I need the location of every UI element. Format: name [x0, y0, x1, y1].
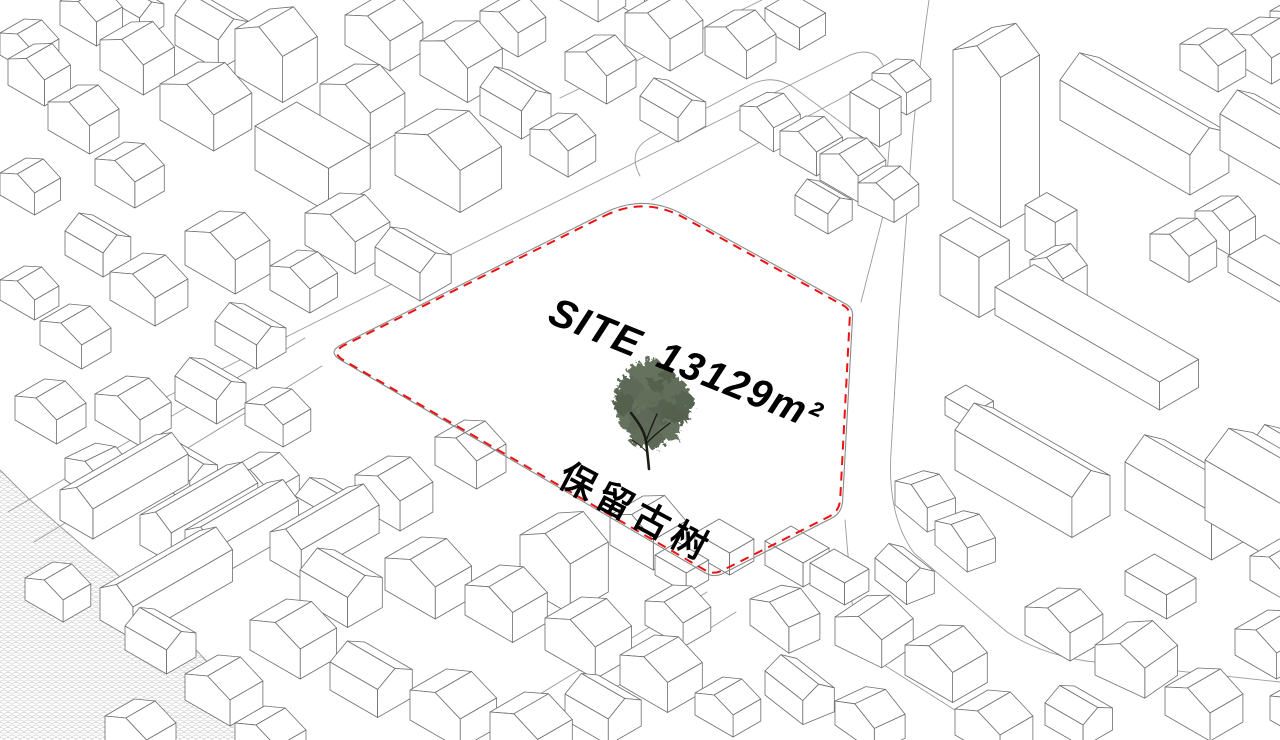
- building: [750, 585, 820, 653]
- building: [1165, 668, 1243, 740]
- building: [375, 227, 451, 301]
- building: [395, 109, 502, 213]
- building: [245, 387, 311, 447]
- building: [905, 625, 987, 703]
- building: [1045, 686, 1113, 740]
- building: [270, 250, 338, 313]
- building: [545, 597, 632, 679]
- site-label-word: SITE: [543, 290, 649, 367]
- building: [765, 655, 834, 725]
- building: [560, 0, 626, 22]
- building: [1025, 588, 1103, 661]
- building: [1220, 90, 1280, 210]
- building: [835, 595, 913, 668]
- building: [0, 266, 59, 320]
- building: [330, 641, 412, 718]
- site-plan-canvas: SITE13129m² 保留古树: [0, 0, 1280, 740]
- building: [1235, 610, 1280, 679]
- building: [95, 142, 164, 208]
- building: [995, 265, 1199, 411]
- building: [435, 420, 506, 489]
- building: [15, 379, 86, 444]
- building: [385, 537, 472, 619]
- building: [0, 158, 61, 215]
- building: [1125, 554, 1196, 619]
- building: [955, 690, 1033, 740]
- building: [935, 511, 995, 572]
- building: [175, 358, 246, 425]
- building: [835, 687, 905, 740]
- building: [490, 692, 572, 740]
- building: [695, 677, 761, 737]
- building: [185, 211, 270, 294]
- building: [1270, 678, 1280, 740]
- building: [953, 23, 1040, 227]
- scene-svg: SITE13129m² 保留古树: [0, 0, 1280, 740]
- building: [40, 304, 111, 369]
- building: [345, 0, 423, 71]
- building: [215, 303, 286, 370]
- building: [410, 669, 497, 740]
